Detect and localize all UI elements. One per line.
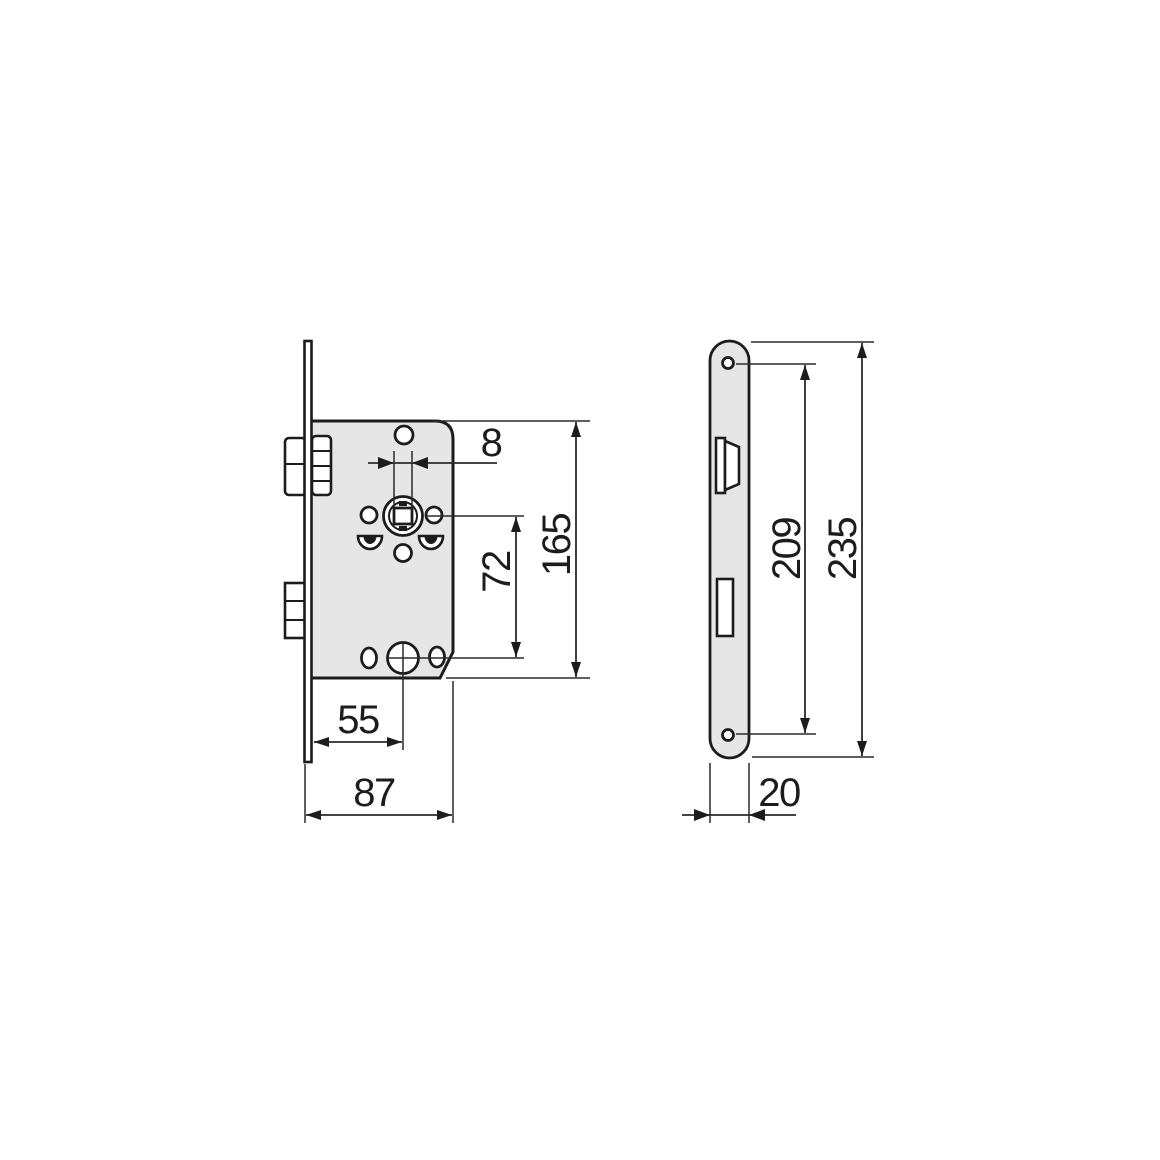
faceplate-screw-hole-bottom bbox=[723, 730, 734, 741]
dim-label-87: 87 bbox=[353, 771, 395, 815]
top-screw-hole bbox=[395, 426, 413, 444]
deadbolt-opening bbox=[717, 579, 733, 636]
handle-screw-hole-right bbox=[426, 507, 442, 523]
spring-catch-left bbox=[358, 536, 382, 549]
follower-square-hole bbox=[394, 508, 412, 524]
spring-catch-right bbox=[419, 536, 443, 549]
drawing-canvas: 8 165 72 55 87 bbox=[0, 0, 1160, 1160]
dim-backset: 55 bbox=[314, 698, 402, 742]
faceplate-edge bbox=[305, 341, 312, 762]
dim-label-235: 235 bbox=[821, 518, 865, 580]
dim-case-height: 165 bbox=[432, 421, 590, 678]
handle-screw-hole-left bbox=[361, 507, 377, 523]
side-view: 8 165 72 55 87 bbox=[285, 341, 590, 823]
stop-pin-hole bbox=[395, 545, 412, 562]
follower-nub-top bbox=[399, 501, 407, 506]
dim-faceplate-width: 20 bbox=[682, 763, 800, 823]
arrowhead bbox=[694, 809, 710, 821]
latch-bolt-head bbox=[285, 438, 306, 495]
faceplate-front-view: 209 235 20 bbox=[682, 341, 874, 823]
dim-label-8: 8 bbox=[481, 421, 502, 465]
latch-opening bbox=[716, 438, 739, 493]
spindle-follower bbox=[384, 497, 423, 536]
dim-case-depth: 87 bbox=[305, 681, 453, 823]
deadbolt bbox=[285, 583, 306, 638]
follower-nub-bottom bbox=[399, 526, 407, 531]
dim-label-20: 20 bbox=[758, 771, 800, 815]
dim-label-72: 72 bbox=[475, 551, 519, 593]
latch-opening-bolt-face bbox=[725, 441, 739, 490]
dim-label-55: 55 bbox=[337, 698, 379, 742]
bottom-slot-right bbox=[430, 647, 445, 667]
dim-label-209: 209 bbox=[765, 518, 809, 580]
bottom-slot-left bbox=[362, 648, 377, 668]
latch-opening-slot bbox=[716, 438, 725, 493]
dim-label-165: 165 bbox=[535, 514, 579, 576]
lock-technical-drawing: 8 165 72 55 87 bbox=[0, 0, 1160, 1160]
deadbolt-head bbox=[285, 583, 306, 638]
faceplate-front bbox=[710, 341, 749, 758]
faceplate-screw-hole-top bbox=[723, 358, 734, 369]
